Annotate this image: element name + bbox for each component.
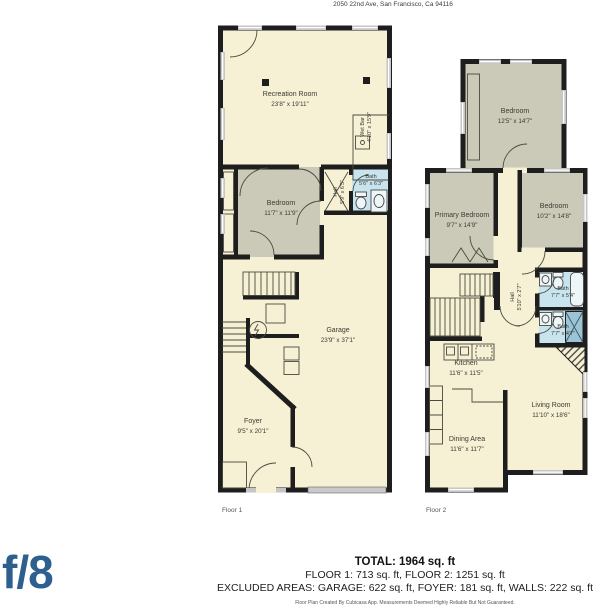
room-dims: 4'10" x 15'9" bbox=[367, 112, 374, 142]
room-dims: 9'5" x 20'1" bbox=[237, 428, 268, 436]
room-label-dining-area: Dining Area 11'6" x 11'7" bbox=[449, 436, 485, 454]
room-name: Living Room bbox=[532, 402, 571, 411]
room-dims: 7'7" x 5'4" bbox=[551, 293, 575, 300]
room-name: Hall bbox=[510, 283, 517, 310]
total-area-text: TOTAL: 1964 sq. ft bbox=[205, 556, 600, 568]
room-name: Kitchen bbox=[449, 360, 483, 369]
room-dims: 23'9" x 37'1" bbox=[321, 337, 356, 345]
room-label-bedroom-right: Bedroom 10'2" x 14'8" bbox=[537, 203, 572, 221]
room-label-hall-f1: Hall 5'9" x 6'5" bbox=[333, 180, 347, 204]
room-name: Primary Bedroom bbox=[435, 212, 489, 221]
room-label-bath-lower: Bath 7'7" x 4'7" bbox=[551, 324, 575, 338]
room-label-wet-bar: Wet Bar 4'10" x 15'9" bbox=[360, 112, 374, 142]
room-name: Bedroom bbox=[498, 108, 533, 117]
floor1-tag: Floor 1 bbox=[222, 507, 242, 514]
summary-block: TOTAL: 1964 sq. ft FLOOR 1: 713 sq. ft, … bbox=[205, 556, 600, 606]
room-dims: 5'9" x 6'5" bbox=[340, 180, 347, 204]
address-text: 2050 22nd Ave, San Francisco, Ca 94116 bbox=[190, 1, 596, 8]
room-label-bedroom-f1: Bedroom 11'7" x 11'9" bbox=[264, 200, 298, 218]
room-name: Wet Bar bbox=[360, 112, 367, 142]
room-dims: 10'2" x 14'8" bbox=[537, 213, 572, 221]
room-dims: 7'7" x 4'7" bbox=[551, 331, 575, 338]
f8-logo: f/8 bbox=[2, 545, 53, 599]
room-name: Recreation Room bbox=[263, 91, 317, 100]
room-label-hall-f2: Hall 5'10" x 2'7" bbox=[510, 283, 524, 310]
room-name: Hall bbox=[333, 180, 340, 204]
floor-areas-text: FLOOR 1: 713 sq. ft, FLOOR 2: 1251 sq. f… bbox=[205, 569, 600, 581]
disclaimer-text: Floor Plan Created By Cubicasa App. Meas… bbox=[205, 600, 600, 606]
room-dims: 23'8" x 19'11" bbox=[263, 101, 317, 109]
room-name: Bedroom bbox=[264, 200, 298, 209]
room-label-recreation: Recreation Room 23'8" x 19'11" bbox=[263, 91, 317, 109]
room-label-kitchen: Kitchen 11'6" x 11'5" bbox=[449, 360, 483, 378]
room-dims: 11'7" x 11'9" bbox=[264, 210, 298, 218]
room-name: Bath bbox=[551, 286, 575, 293]
room-label-garage: Garage 23'9" x 37'1" bbox=[321, 327, 356, 345]
room-label-foyer: Foyer 9'5" x 20'1" bbox=[237, 418, 268, 436]
room-dims: 5'10" x 2'7" bbox=[517, 283, 524, 310]
room-name: Foyer bbox=[237, 418, 268, 427]
excluded-areas-text: EXCLUDED AREAS: GARAGE: 622 sq. ft, FOYE… bbox=[205, 582, 600, 594]
room-dims: 12'5" x 14'7" bbox=[498, 118, 533, 126]
room-name: Bath bbox=[359, 174, 383, 181]
room-label-bath-upper: Bath 7'7" x 5'4" bbox=[551, 286, 575, 300]
room-label-bedroom-top: Bedroom 12'5" x 14'7" bbox=[498, 108, 533, 126]
room-name: Bedroom bbox=[537, 203, 572, 212]
room-label-bath-f1: Bath 5'6" x 6'3" bbox=[359, 174, 383, 188]
floor2-tag: Floor 2 bbox=[426, 507, 446, 514]
room-dims: 11'6" x 11'7" bbox=[449, 446, 485, 454]
room-dims: 5'6" x 6'3" bbox=[359, 181, 383, 188]
room-dims: 11'6" x 11'5" bbox=[449, 370, 483, 378]
room-name: Garage bbox=[321, 327, 356, 336]
room-name: Dining Area bbox=[449, 436, 485, 445]
room-label-primary-bedroom: Primary Bedroom 9'7" x 14'9" bbox=[435, 212, 489, 230]
room-dims: 9'7" x 14'9" bbox=[435, 222, 489, 230]
room-label-living-room: Living Room 11'10" x 18'6" bbox=[532, 402, 571, 420]
floor-plan-page: 2050 22nd Ave, San Francisco, Ca 94116 R… bbox=[0, 0, 600, 614]
room-name: Bath bbox=[551, 324, 575, 331]
room-dims: 11'10" x 18'6" bbox=[532, 412, 571, 420]
